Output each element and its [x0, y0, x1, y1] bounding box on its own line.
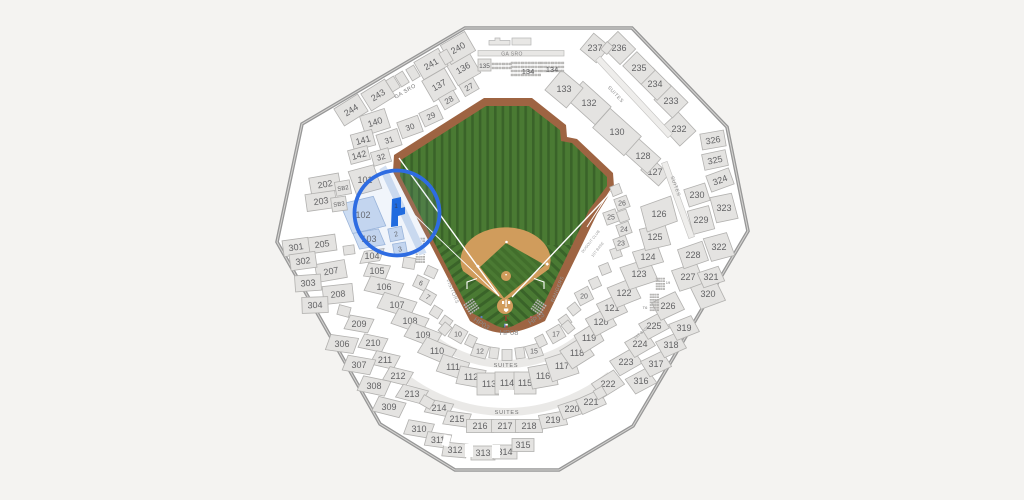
svg-text:234: 234	[647, 79, 662, 89]
svg-text:227: 227	[680, 272, 695, 282]
svg-text:17: 17	[552, 331, 560, 338]
svg-text:221: 221	[583, 397, 598, 407]
svg-text:220: 220	[564, 404, 579, 414]
svg-text:123: 123	[631, 269, 646, 279]
svg-text:309: 309	[381, 402, 396, 412]
svg-text:211: 211	[378, 355, 392, 365]
svg-text:304: 304	[307, 300, 322, 311]
svg-text:124: 124	[640, 252, 655, 262]
svg-text:15: 15	[530, 348, 538, 355]
svg-text:110: 110	[430, 346, 444, 356]
svg-text:319: 319	[676, 323, 691, 333]
svg-text:106: 106	[376, 282, 391, 292]
svg-text:310: 310	[411, 424, 426, 434]
svg-text:130: 130	[609, 127, 624, 137]
svg-text:303: 303	[300, 278, 316, 289]
svg-text:320: 320	[700, 289, 715, 299]
svg-text:307: 307	[351, 360, 366, 370]
svg-text:210: 210	[365, 338, 380, 348]
svg-text:T: T	[503, 313, 509, 323]
svg-text:217: 217	[497, 421, 512, 431]
svg-text:112: 112	[464, 372, 478, 382]
svg-text:322: 322	[711, 242, 726, 252]
svg-text:225: 225	[646, 321, 661, 331]
svg-text:205: 205	[314, 238, 330, 250]
svg-text:111: 111	[446, 362, 460, 372]
svg-text:323: 323	[716, 203, 731, 213]
svg-text:230: 230	[689, 190, 704, 200]
svg-text:SUITES: SUITES	[494, 363, 519, 369]
svg-text:313: 313	[475, 448, 490, 458]
svg-text:135: 135	[479, 63, 490, 70]
svg-text:10: 10	[454, 331, 462, 338]
svg-text:229: 229	[693, 215, 708, 225]
svg-text:133: 133	[556, 84, 571, 94]
svg-text:209: 209	[351, 319, 366, 329]
svg-text:116: 116	[536, 371, 550, 381]
svg-text:226: 226	[660, 301, 675, 311]
svg-text:117: 117	[555, 361, 569, 371]
svg-text:105: 105	[369, 266, 384, 276]
svg-text:134: 134	[546, 65, 559, 74]
svg-text:215: 215	[449, 414, 464, 424]
svg-text:25: 25	[607, 214, 615, 221]
svg-text:223: 223	[618, 357, 633, 367]
svg-text:228: 228	[685, 250, 700, 260]
svg-text:SUITES: SUITES	[495, 410, 520, 416]
svg-text:316: 316	[633, 376, 648, 386]
svg-text:GA SRO: GA SRO	[501, 52, 523, 58]
svg-text:317: 317	[648, 359, 663, 369]
svg-text:321: 321	[703, 272, 718, 282]
svg-text:107: 107	[389, 300, 404, 310]
svg-text:301: 301	[288, 241, 304, 253]
svg-text:315: 315	[515, 440, 530, 450]
svg-text:126: 126	[651, 209, 666, 219]
svg-text:128: 128	[635, 151, 650, 161]
svg-text:212: 212	[390, 371, 405, 381]
svg-text:T6: T6	[643, 305, 648, 310]
svg-text:233: 233	[663, 96, 678, 106]
svg-text:318: 318	[663, 340, 678, 350]
svg-text:23: 23	[617, 240, 625, 247]
svg-text:12: 12	[476, 348, 484, 355]
svg-text:232: 232	[671, 124, 686, 134]
svg-text:134: 134	[522, 67, 535, 76]
svg-text:113: 113	[482, 379, 496, 389]
svg-text:237: 237	[587, 43, 602, 53]
svg-text:20: 20	[580, 293, 588, 300]
svg-text:235: 235	[631, 63, 646, 73]
svg-text:125: 125	[647, 232, 662, 242]
svg-text:208: 208	[330, 288, 346, 300]
svg-text:306: 306	[334, 339, 349, 349]
svg-text:132: 132	[581, 98, 596, 108]
svg-text:115: 115	[518, 378, 532, 388]
svg-text:214: 214	[431, 403, 446, 413]
svg-text:216: 216	[472, 421, 487, 431]
svg-text:218: 218	[521, 421, 536, 431]
svg-text:302: 302	[295, 255, 311, 267]
svg-text:236: 236	[611, 43, 626, 53]
svg-text:308: 308	[366, 381, 381, 391]
svg-text:24: 24	[620, 226, 628, 233]
svg-text:114: 114	[500, 378, 514, 388]
svg-text:213: 213	[404, 389, 419, 399]
svg-text:26: 26	[618, 200, 626, 207]
svg-text:HP08: HP08	[500, 328, 519, 337]
svg-text:219: 219	[545, 415, 560, 425]
svg-text:312: 312	[447, 445, 462, 455]
svg-text:203: 203	[313, 195, 329, 207]
svg-text:19: 19	[666, 280, 671, 285]
